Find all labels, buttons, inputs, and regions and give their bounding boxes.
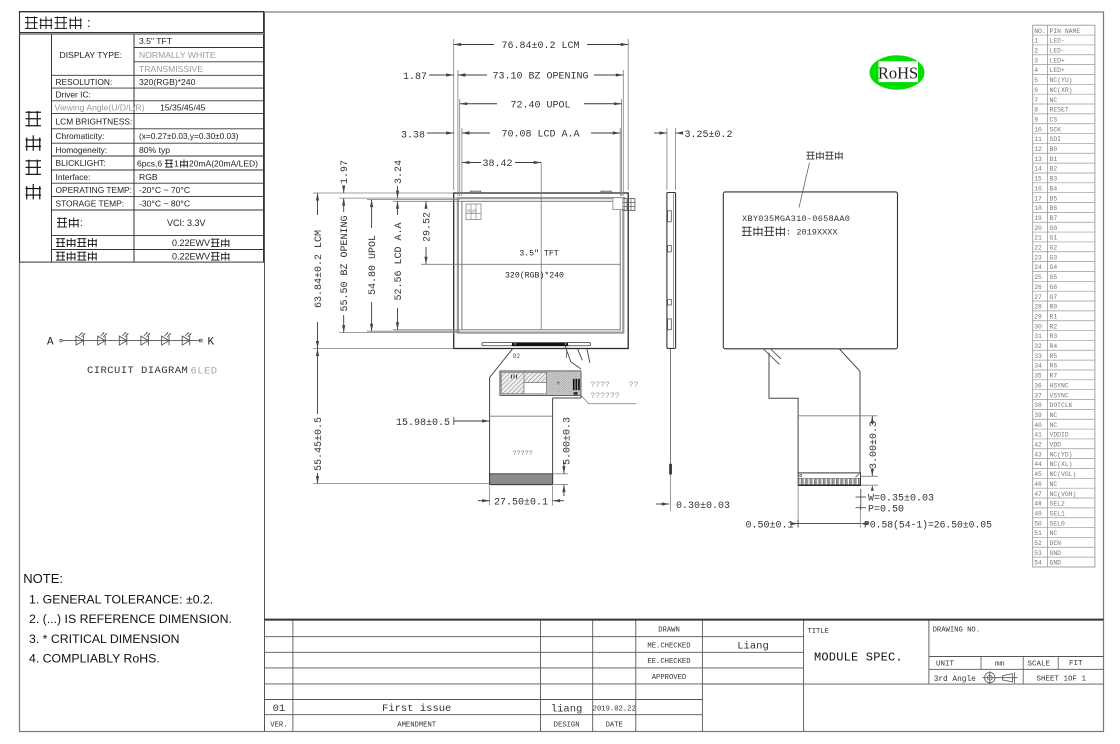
svg-text:CS: CS (1050, 116, 1058, 123)
svg-text:SEL1: SEL1 (1050, 510, 1066, 517)
svg-text:38: 38 (1034, 402, 1042, 409)
svg-text:Driver IC:: Driver IC: (56, 90, 91, 100)
svg-text:R1: R1 (1050, 313, 1058, 320)
svg-text:27: 27 (1034, 294, 1042, 301)
svg-text:20: 20 (1034, 225, 1042, 232)
svg-text:R0: R0 (1050, 304, 1058, 311)
svg-text:24: 24 (1034, 264, 1042, 271)
svg-text:Liang: Liang (737, 641, 769, 653)
svg-text:G4: G4 (1050, 264, 1058, 271)
svg-text:4. COMPLIABLY RoHS.: 4. COMPLIABLY RoHS. (29, 652, 160, 666)
svg-text:????: ???? (590, 381, 610, 390)
svg-text:6LED: 6LED (191, 366, 218, 378)
svg-text:11: 11 (1034, 136, 1042, 143)
svg-text:53: 53 (1034, 550, 1042, 557)
svg-text:33: 33 (1034, 353, 1042, 360)
svg-text:LED-: LED- (1050, 38, 1065, 45)
svg-text:K: K (208, 337, 215, 349)
svg-text:DEN: DEN (1050, 540, 1062, 547)
svg-text:43: 43 (1034, 451, 1042, 458)
svg-text:5.00±0.3: 5.00±0.3 (562, 417, 573, 465)
svg-text:4: 4 (1034, 67, 1038, 74)
svg-text:3: 3 (1034, 57, 1038, 64)
svg-text:DATE: DATE (606, 722, 623, 730)
svg-text:R6: R6 (1050, 363, 1058, 370)
svg-text::: : (87, 15, 91, 30)
svg-text:VER.: VER. (270, 722, 287, 730)
svg-text:CIRCUIT DIAGRAM: CIRCUIT DIAGRAM (87, 365, 188, 377)
svg-text:1: 1 (1034, 38, 1038, 45)
svg-text:6: 6 (1034, 87, 1038, 94)
svg-text:R5: R5 (1050, 353, 1058, 360)
svg-text:R4: R4 (1050, 343, 1058, 350)
svg-text:VDD: VDD (1050, 442, 1062, 449)
svg-text:NORMALLY WHITE: NORMALLY WHITE (139, 50, 216, 60)
svg-text:G6: G6 (1050, 284, 1058, 291)
svg-text:3.38: 3.38 (401, 131, 425, 142)
svg-text:0.50±0.1: 0.50±0.1 (745, 521, 793, 532)
svg-text:B6: B6 (1050, 205, 1058, 212)
svg-text:RESET: RESET (1050, 107, 1069, 114)
svg-text:R7: R7 (1050, 373, 1058, 380)
svg-text:DOTCLK: DOTCLK (1050, 402, 1073, 409)
svg-text:28: 28 (1034, 304, 1042, 311)
svg-text:Interface:: Interface: (56, 172, 91, 182)
svg-text:VSYNC: VSYNC (1050, 392, 1069, 399)
svg-text:13: 13 (1034, 156, 1042, 163)
svg-text:12: 12 (1034, 146, 1042, 153)
svg-text:27.50±0.1: 27.50±0.1 (494, 498, 548, 509)
svg-text:52.56 LCD A.A: 52.56 LCD A.A (394, 222, 405, 300)
svg-text:44: 44 (1034, 461, 1042, 468)
svg-text:ME.CHECKED: ME.CHECKED (647, 642, 690, 650)
svg-text:R3: R3 (1050, 333, 1058, 340)
svg-text:NO.: NO. (1034, 28, 1046, 35)
svg-text:B5: B5 (1050, 195, 1058, 202)
svg-text:40: 40 (1034, 422, 1042, 429)
svg-text:1: 1 (174, 158, 179, 168)
svg-text:34: 34 (1034, 363, 1042, 370)
svg-text:G5: G5 (1050, 274, 1058, 281)
svg-text:73.10 BZ OPENING: 73.10 BZ OPENING (492, 72, 588, 83)
svg-text:15: 15 (1034, 176, 1042, 183)
svg-text:TRANSMISSIVE: TRANSMISSIVE (139, 64, 203, 74)
svg-text:NC(XL): NC(XL) (1050, 461, 1073, 468)
svg-text:B0: B0 (1050, 146, 1058, 153)
svg-text:15/35/45/45: 15/35/45/45 (160, 102, 206, 112)
svg-text:GND: GND (1050, 560, 1062, 567)
svg-text:NC: NC (1050, 422, 1058, 429)
svg-text:23: 23 (1034, 254, 1042, 261)
svg-text:B7: B7 (1050, 215, 1058, 222)
svg-text:HSYNC: HSYNC (1050, 382, 1069, 389)
svg-text:3rd Angle: 3rd Angle (934, 676, 976, 684)
svg-text:A: A (47, 337, 54, 349)
svg-text:50: 50 (1034, 520, 1042, 527)
svg-text:RGB: RGB (139, 172, 158, 182)
svg-text:51: 51 (1034, 530, 1042, 537)
svg-text:36: 36 (1034, 382, 1042, 389)
svg-text:MODULE SPEC.: MODULE SPEC. (814, 651, 903, 665)
svg-text:2: 2 (1034, 48, 1038, 55)
svg-text:NC(VGL): NC(VGL) (1050, 471, 1077, 478)
svg-text:W=0.35±0.03: W=0.35±0.03 (868, 494, 934, 505)
svg-text:NOTE:: NOTE: (23, 571, 63, 586)
svg-text:37: 37 (1034, 392, 1042, 399)
svg-text:SEL0: SEL0 (1050, 520, 1066, 527)
svg-text:SCK: SCK (1050, 126, 1062, 133)
svg-text:(x=0.27±0.03,y=0.30±0.03): (x=0.27±0.03,y=0.30±0.03) (139, 131, 239, 141)
svg-text:LCM BRIGHTNESS:: LCM BRIGHTNESS: (56, 116, 133, 126)
svg-text:SEL2: SEL2 (1050, 501, 1066, 508)
svg-text:?????: ????? (512, 450, 532, 458)
svg-text:NC(XR): NC(XR) (1050, 87, 1073, 94)
svg-text:DRAWING NO.: DRAWING NO. (933, 627, 980, 635)
svg-text:38.42: 38.42 (482, 159, 512, 170)
svg-text:30: 30 (1034, 323, 1042, 330)
svg-text:STORAGE TEMP:: STORAGE TEMP: (56, 199, 125, 209)
svg-text:mm: mm (995, 661, 1005, 669)
svg-text:39: 39 (1034, 412, 1042, 419)
svg-text:Chromaticity:: Chromaticity: (56, 131, 105, 141)
svg-text:22: 22 (1034, 245, 1042, 252)
svg-text:NC: NC (1050, 97, 1058, 104)
svg-text:VCI: 3.3V: VCI: 3.3V (167, 218, 206, 228)
svg-text:FIT: FIT (1069, 660, 1083, 668)
svg-text:TITLE: TITLE (807, 628, 829, 636)
svg-text:48: 48 (1034, 501, 1042, 508)
svg-text:320(RGB)*240: 320(RGB)*240 (505, 270, 564, 280)
svg-text:NC: NC (1050, 481, 1058, 488)
svg-text:17: 17 (1034, 195, 1042, 202)
svg-text:G1: G1 (1050, 235, 1058, 242)
svg-text:BLICKLIGHT:: BLICKLIGHT: (56, 158, 106, 168)
svg-text:UNIT: UNIT (936, 661, 955, 669)
svg-text:14: 14 (1034, 166, 1042, 173)
svg-text:19: 19 (1034, 215, 1042, 222)
svg-text:1.97: 1.97 (340, 160, 351, 184)
svg-text:B4: B4 (1050, 185, 1058, 192)
svg-text:29: 29 (1034, 313, 1042, 320)
svg-text:6pcs,6: 6pcs,6 (137, 158, 162, 168)
svg-text:SCALE: SCALE (1028, 661, 1051, 669)
svg-text:LED+: LED+ (1050, 67, 1066, 74)
svg-text:1. GENERAL TOLERANCE: ±0.2.: 1. GENERAL TOLERANCE: ±0.2. (29, 593, 213, 607)
svg-text:72.40 UPOL: 72.40 UPOL (510, 100, 570, 111)
svg-text:3.5" TFT: 3.5" TFT (139, 36, 173, 46)
svg-text:LED-: LED- (1050, 48, 1065, 55)
svg-text:26: 26 (1034, 284, 1042, 291)
svg-text:Homogeneity:: Homogeneity: (56, 145, 108, 155)
svg-text:10: 10 (1034, 126, 1042, 133)
svg-text:0.30±0.03: 0.30±0.03 (676, 501, 730, 512)
svg-text:8: 8 (1034, 107, 1038, 114)
svg-text:9: 9 (1034, 116, 1038, 123)
svg-text:DESIGN: DESIGN (554, 722, 580, 730)
svg-text:EE.CHECKED: EE.CHECKED (647, 658, 690, 666)
svg-text:??: ?? (629, 381, 639, 390)
svg-text:3.00±0.3: 3.00±0.3 (869, 421, 880, 469)
svg-text:RESOLUTION:: RESOLUTION: (56, 77, 113, 87)
svg-text:7: 7 (1034, 97, 1038, 104)
svg-text:NC: NC (1050, 412, 1058, 419)
svg-text:1.87: 1.87 (403, 72, 427, 83)
svg-text:RGB: RGB (467, 208, 476, 214)
svg-text:P0.58(54-1)=26.50±0.05: P0.58(54-1)=26.50±0.05 (864, 520, 992, 531)
svg-text:54.80 UPOL: 54.80 UPOL (368, 235, 379, 295)
svg-text:B1: B1 (1050, 156, 1058, 163)
svg-text:47: 47 (1034, 491, 1042, 498)
svg-text:3. * CRITICAL DIMENSION: 3. * CRITICAL DIMENSION (29, 632, 180, 646)
svg-text:63.84±0.2 LCM: 63.84±0.2 LCM (314, 230, 325, 308)
svg-text:3.25±0.2: 3.25±0.2 (685, 130, 733, 141)
svg-text:42: 42 (1034, 442, 1042, 449)
svg-text:NC(YD): NC(YD) (1050, 451, 1073, 458)
svg-text:45: 45 (1034, 471, 1042, 478)
svg-text:25: 25 (1034, 274, 1042, 281)
svg-text:49: 49 (1034, 510, 1042, 517)
svg-text:31: 31 (1034, 333, 1042, 340)
svg-text:G2: G2 (1050, 245, 1058, 252)
svg-text:VDDID: VDDID (1050, 432, 1069, 439)
svg-text:NC(VGH): NC(VGH) (1050, 491, 1077, 498)
svg-text:92: 92 (513, 353, 521, 360)
svg-text:liang: liang (551, 704, 583, 716)
svg-text:320(RGB)*240: 320(RGB)*240 (139, 77, 196, 87)
svg-text:35: 35 (1034, 373, 1042, 380)
svg-text:16: 16 (1034, 185, 1042, 192)
svg-text:41: 41 (1034, 432, 1042, 439)
svg-text:SHEET 1OF 1: SHEET 1OF 1 (1037, 676, 1087, 684)
svg-text:PIN NAME: PIN NAME (1050, 28, 1081, 35)
svg-text:-30°C ~ 80°C: -30°C ~ 80°C (139, 199, 190, 209)
svg-text:GND: GND (1050, 550, 1062, 557)
svg-text:2019.02.22: 2019.02.22 (593, 706, 636, 714)
svg-text:G0: G0 (1050, 225, 1058, 232)
svg-text:G7: G7 (1050, 294, 1058, 301)
svg-text:55.50 BZ OPENING: 55.50 BZ OPENING (340, 215, 351, 311)
svg-text:80% typ: 80% typ (139, 145, 170, 155)
svg-text::: : (80, 218, 83, 229)
svg-text:Viewing Angle(U/D/L/R): Viewing Angle(U/D/L/R) (55, 102, 145, 112)
svg-text:01: 01 (273, 703, 286, 715)
svg-text:SDI: SDI (1050, 136, 1062, 143)
svg-text:AMENDMENT: AMENDMENT (397, 722, 437, 730)
svg-text:B3: B3 (1050, 176, 1058, 183)
svg-text:0.22EWV: 0.22EWV (172, 238, 210, 248)
svg-text:LED+: LED+ (1050, 57, 1066, 64)
svg-text:-20°C ~ 70°C: -20°C ~ 70°C (139, 185, 190, 195)
svg-text:: 2019XXXX: : 2019XXXX (786, 228, 838, 238)
svg-text:NC: NC (1050, 530, 1058, 537)
svg-text:RoHS: RoHS (878, 64, 918, 83)
svg-text:70.08 LCD A.A: 70.08 LCD A.A (501, 130, 579, 141)
svg-text:46: 46 (1034, 481, 1042, 488)
svg-text:15.98±0.5: 15.98±0.5 (396, 418, 450, 429)
svg-text:DRAWN: DRAWN (658, 627, 680, 635)
svg-text:3.24: 3.24 (394, 160, 405, 184)
svg-text:76.84±0.2 LCM: 76.84±0.2 LCM (501, 41, 579, 52)
svg-text:55.45±0.5: 55.45±0.5 (314, 417, 325, 471)
svg-text:XBY035MGA310-0658AA0: XBY035MGA310-0658AA0 (742, 214, 850, 224)
svg-text:NC(YU): NC(YU) (1050, 77, 1073, 84)
svg-text:R2: R2 (1050, 323, 1058, 330)
svg-text:20mA(20mA/LED): 20mA(20mA/LED) (189, 158, 258, 168)
svg-text:52: 52 (1034, 540, 1042, 547)
svg-text:3.5" TFT: 3.5" TFT (519, 248, 558, 258)
svg-text:First issue: First issue (382, 703, 451, 715)
svg-text:5: 5 (1034, 77, 1038, 84)
svg-text:P=0.50: P=0.50 (868, 505, 904, 516)
svg-text:18: 18 (1034, 205, 1042, 212)
svg-text:2. (...) IS REFERENCE DIMENSIO: 2. (...) IS REFERENCE DIMENSION. (29, 612, 232, 626)
svg-text:APPROVED: APPROVED (652, 674, 687, 682)
svg-text:OPERATING TEMP:: OPERATING TEMP: (56, 185, 132, 195)
svg-text:29.52: 29.52 (423, 212, 434, 242)
svg-text:??????: ?????? (590, 392, 620, 401)
svg-text:G3: G3 (1050, 254, 1058, 261)
svg-text:B2: B2 (1050, 166, 1058, 173)
svg-text:54: 54 (1034, 560, 1042, 567)
svg-text:32: 32 (1034, 343, 1042, 350)
svg-text:DISPLAY TYPE:: DISPLAY TYPE: (60, 50, 123, 60)
svg-text:0.22EWV: 0.22EWV (172, 252, 210, 262)
svg-text:21: 21 (1034, 235, 1042, 242)
